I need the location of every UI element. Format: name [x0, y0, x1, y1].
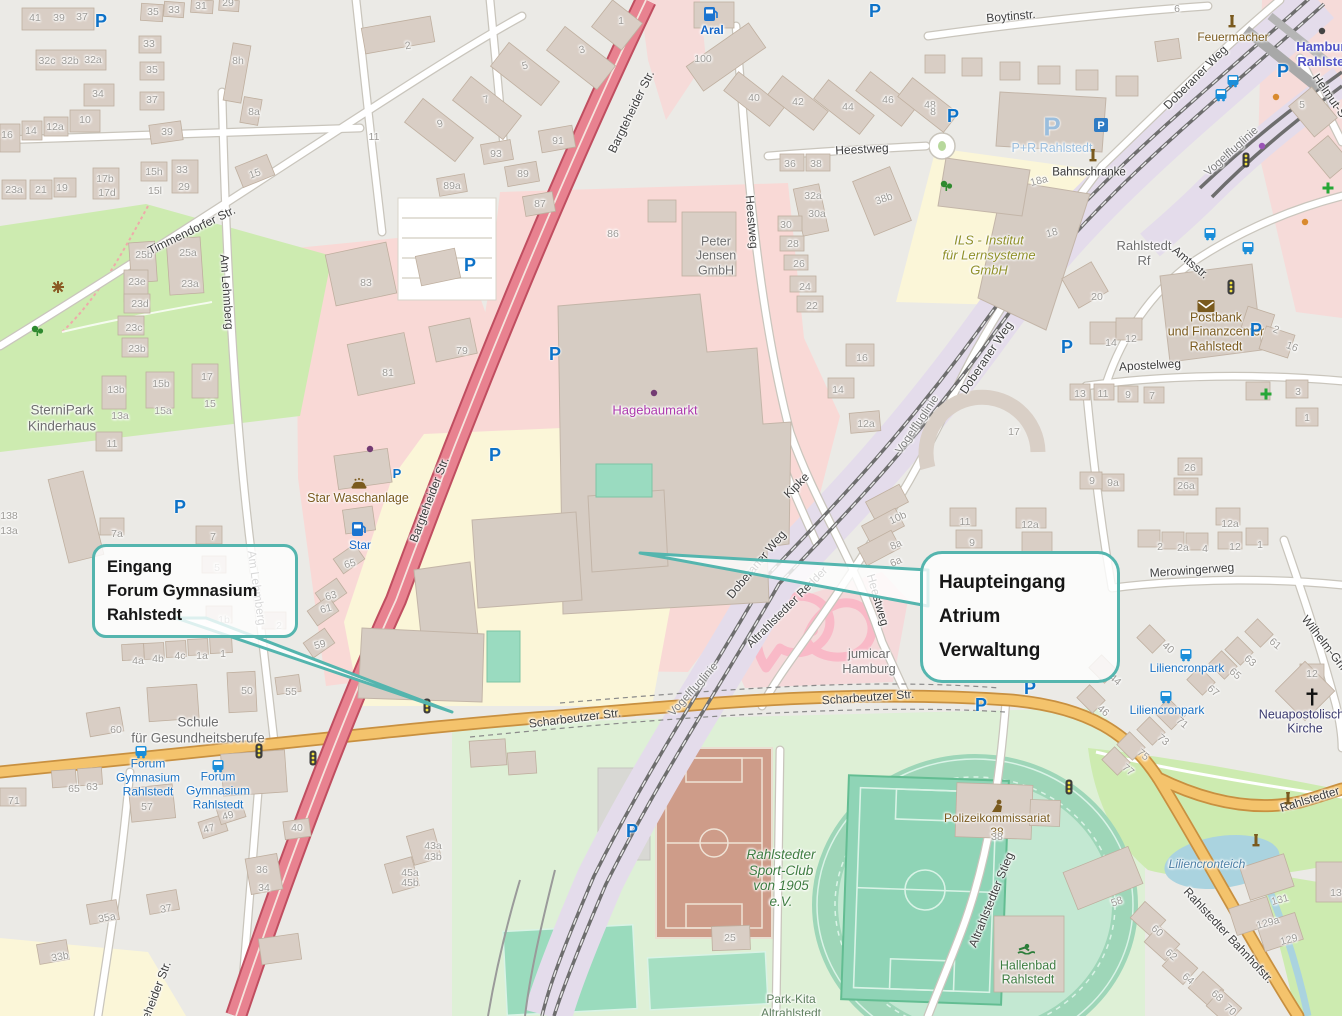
map-viewport[interactable]: Timmendorfer Str.Bargteheider Str.Bargte…	[0, 0, 1342, 1016]
callout-line: Haupteingang	[939, 566, 1101, 600]
callout-line: Rahlstedt	[107, 603, 283, 627]
callout-haupteingang-atrium: Haupteingang Atrium Verwaltung	[920, 551, 1120, 683]
callout-eingang-forum-gymnasium: Eingang Forum Gymnasium Rahlstedt	[92, 544, 298, 638]
callout-line: Verwaltung	[939, 634, 1101, 668]
callout-line: Eingang	[107, 555, 283, 579]
callout-line: Forum Gymnasium	[107, 579, 283, 603]
callout-line: Atrium	[939, 600, 1101, 634]
base-map	[0, 0, 1342, 1016]
